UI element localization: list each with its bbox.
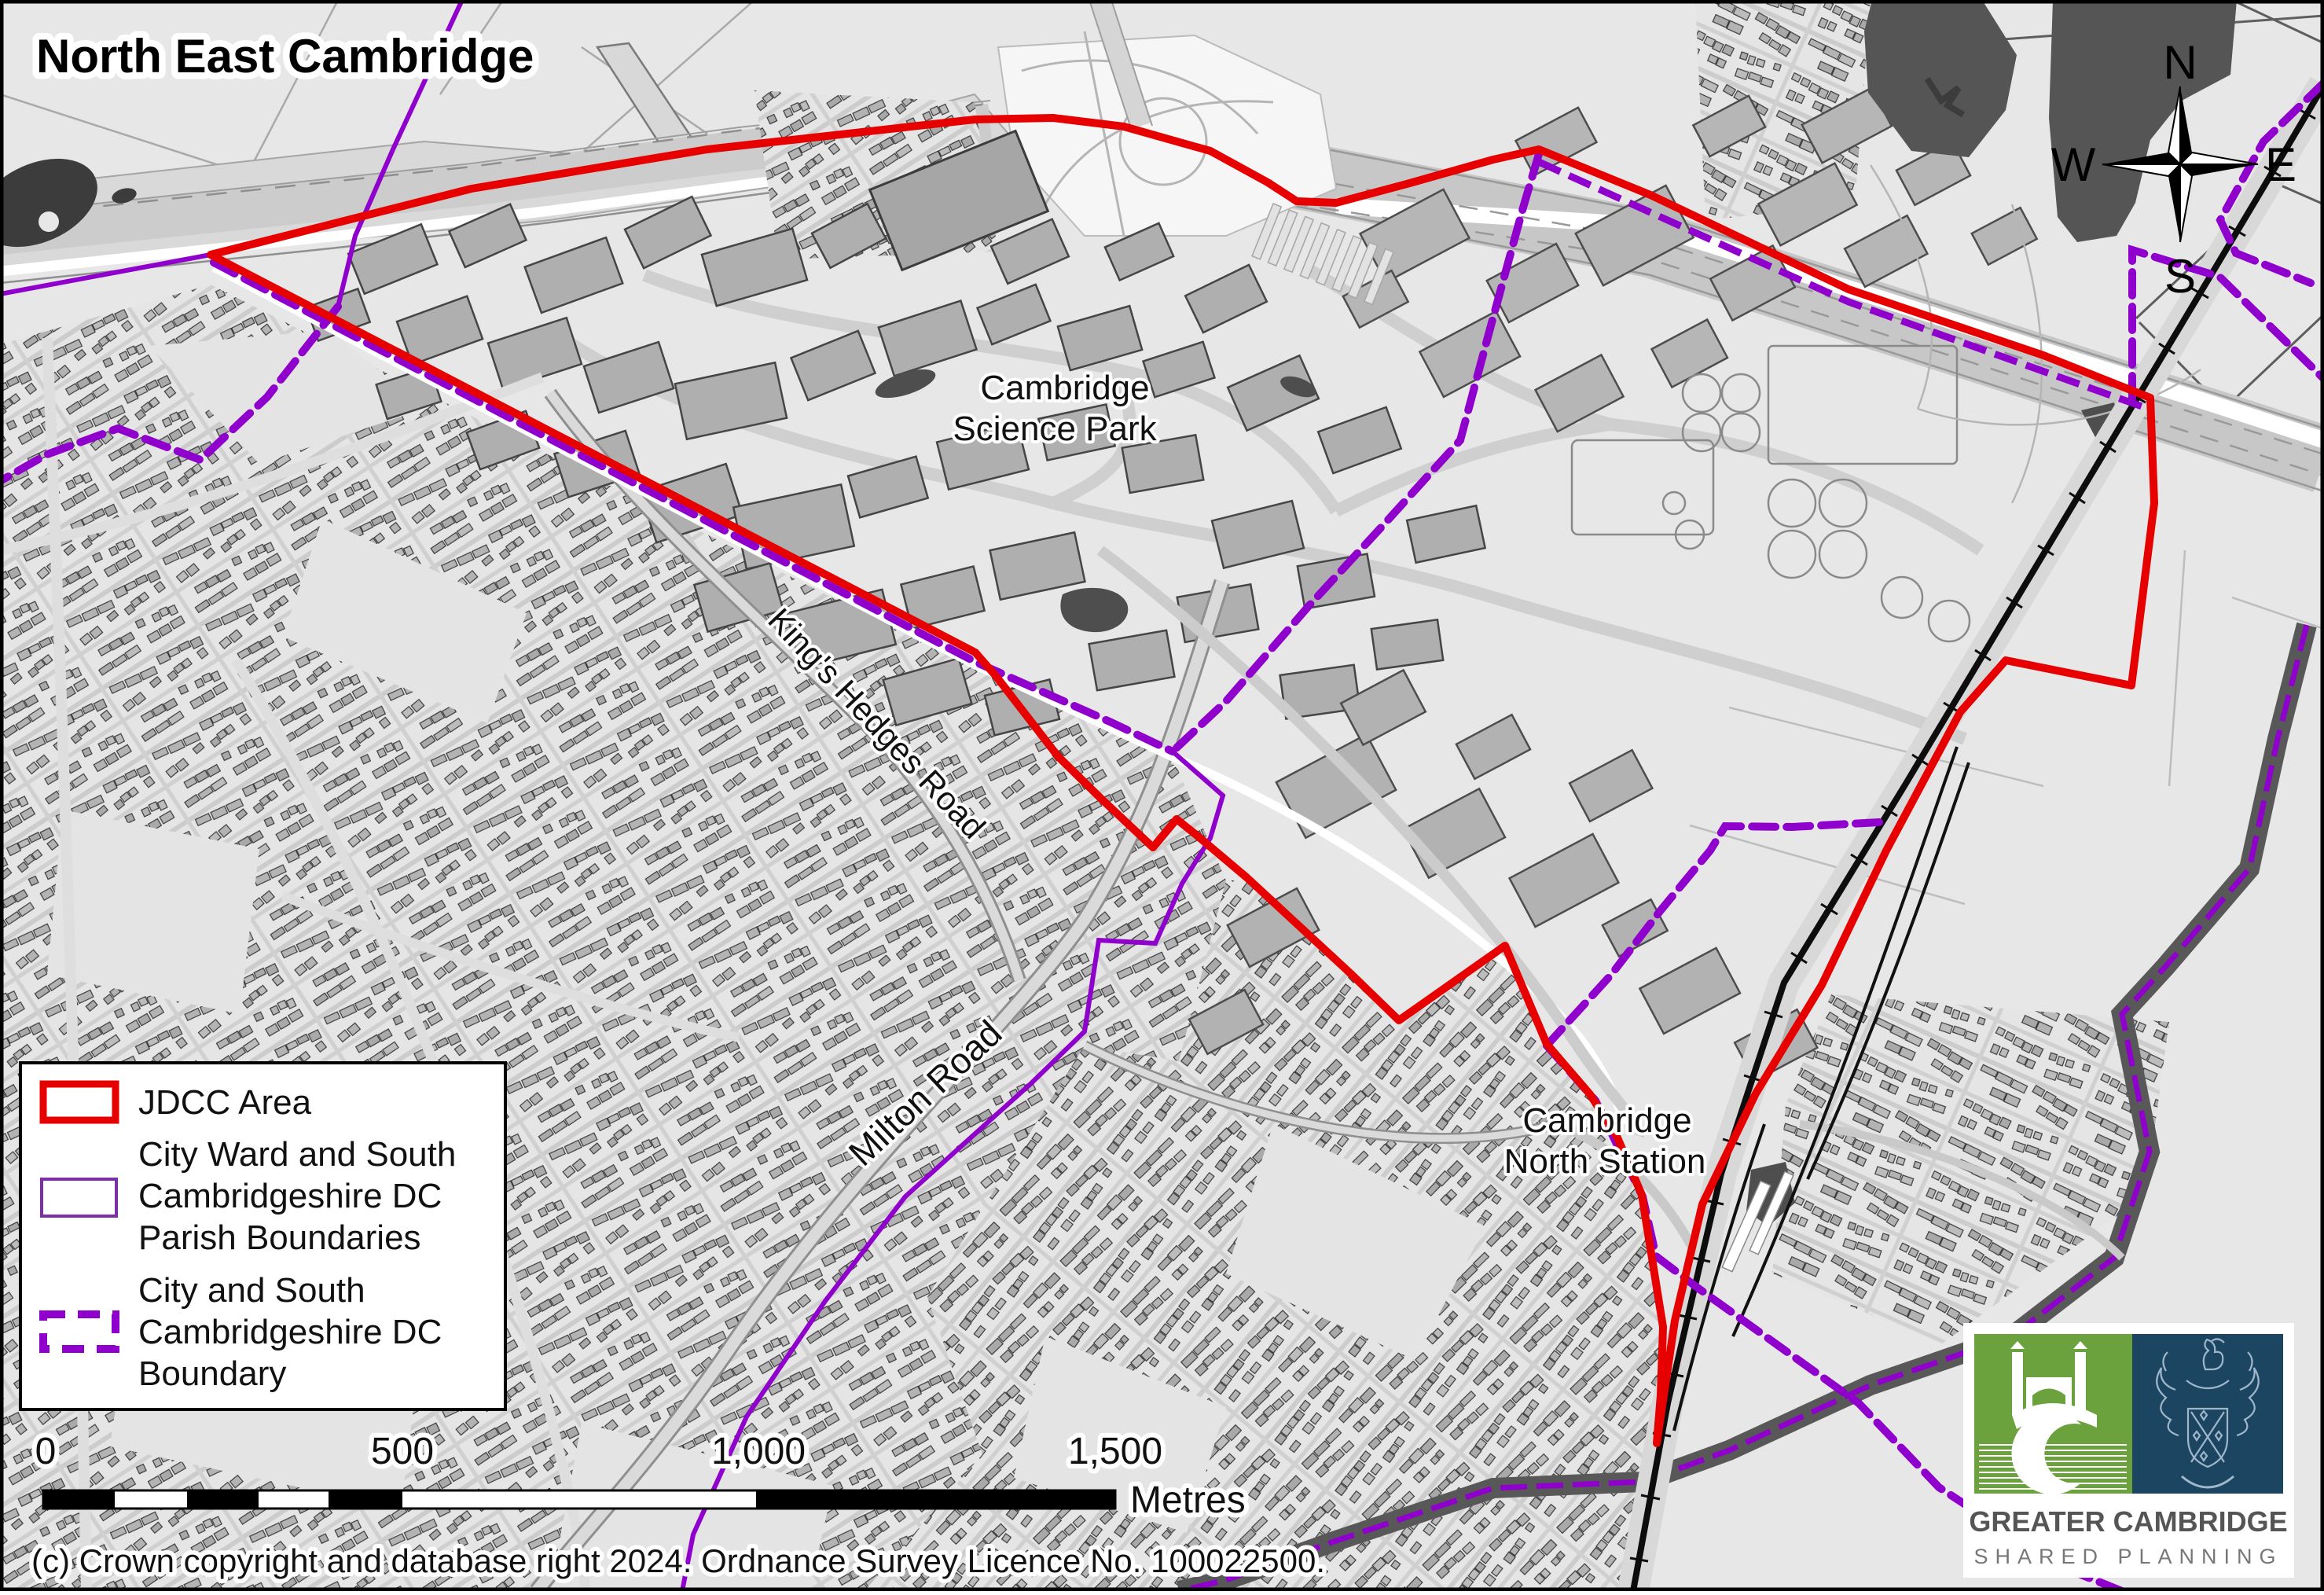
svg-text:GREATER CAMBRIDGE: GREATER CAMBRIDGE bbox=[1969, 1505, 2287, 1538]
svg-text:City and South: City and South bbox=[138, 1271, 365, 1310]
svg-text:Cambridgeshire DC: Cambridgeshire DC bbox=[138, 1177, 442, 1215]
svg-text:Parish Boundaries: Parish Boundaries bbox=[138, 1218, 421, 1257]
svg-text:(c) Crown copyright and databa: (c) Crown copyright and database right 2… bbox=[31, 1542, 1325, 1579]
svg-text:1,000: 1,000 bbox=[711, 1431, 806, 1472]
svg-text:E: E bbox=[2265, 138, 2296, 191]
svg-text:S: S bbox=[2164, 250, 2196, 303]
svg-text:Cambridge: Cambridge bbox=[1522, 1101, 1691, 1140]
svg-text:N: N bbox=[2163, 36, 2197, 89]
svg-text:Metres: Metres bbox=[1130, 1479, 1246, 1521]
svg-text:North Station: North Station bbox=[1504, 1142, 1706, 1181]
svg-text:1,500: 1,500 bbox=[1068, 1431, 1162, 1472]
svg-text:0: 0 bbox=[35, 1431, 57, 1472]
svg-text:Cambridgeshire DC: Cambridgeshire DC bbox=[138, 1313, 442, 1351]
svg-text:SHARED PLANNING: SHARED PLANNING bbox=[1973, 1545, 2282, 1568]
svg-text:JDCC Area: JDCC Area bbox=[138, 1083, 312, 1122]
svg-text:500: 500 bbox=[371, 1431, 434, 1472]
svg-text:Boundary: Boundary bbox=[138, 1354, 286, 1393]
svg-text:Science Park: Science Park bbox=[953, 410, 1157, 448]
svg-text:W: W bbox=[2051, 138, 2096, 191]
svg-text:North East Cambridge: North East Cambridge bbox=[36, 30, 534, 83]
svg-text:Cambridge: Cambridge bbox=[980, 369, 1149, 407]
svg-text:City Ward and South: City Ward and South bbox=[138, 1135, 456, 1174]
